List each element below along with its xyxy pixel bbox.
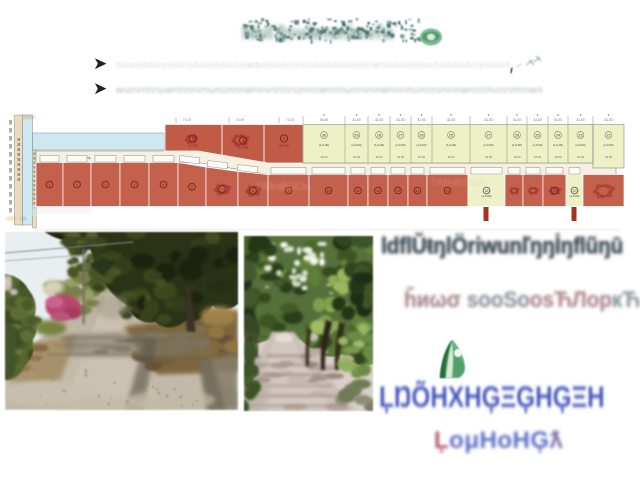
svg-text:26: 26 bbox=[420, 133, 424, 137]
svg-text:16.00: 16.00 bbox=[485, 155, 492, 159]
svg-text:26: 26 bbox=[515, 133, 519, 137]
svg-text:16.00: 16.00 bbox=[353, 155, 360, 159]
svg-text:29: 29 bbox=[355, 133, 359, 137]
svg-text:31.00: 31.00 bbox=[485, 118, 493, 122]
svg-text:(1-0-00): (1-0-00) bbox=[512, 143, 522, 147]
svg-text:22: 22 bbox=[607, 133, 611, 137]
svg-text:10: 10 bbox=[327, 189, 331, 193]
svg-text:27: 27 bbox=[399, 133, 403, 137]
svg-text:31.00: 31.00 bbox=[577, 118, 585, 122]
svg-text:TAfinBOOn: TAfinBOOn bbox=[430, 177, 485, 189]
svg-text:24: 24 bbox=[556, 133, 560, 137]
svg-text:wnw: wnw bbox=[22, 115, 36, 121]
svg-text:(1-0-00): (1-0-00) bbox=[417, 143, 427, 147]
svg-text:31.00: 31.00 bbox=[447, 118, 455, 122]
svg-text:(1-0-00): (1-0-00) bbox=[352, 143, 362, 147]
svg-text:31.00: 31.00 bbox=[320, 118, 328, 122]
svg-text:4: 4 bbox=[134, 183, 136, 187]
svg-text:16.00: 16.00 bbox=[534, 155, 541, 159]
svg-text:13: 13 bbox=[396, 189, 400, 193]
svg-text:11: 11 bbox=[356, 189, 360, 193]
svg-text:(1-0-00): (1-0-00) bbox=[570, 194, 580, 198]
svg-text:16.00: 16.00 bbox=[448, 155, 455, 159]
svg-text:3: 3 bbox=[105, 183, 107, 187]
svg-text:(1-0-00): (1-0-00) bbox=[396, 143, 406, 147]
svg-text:1: 1 bbox=[49, 183, 51, 187]
svg-text:(1-0-00): (1-0-00) bbox=[533, 143, 543, 147]
svg-text:16.00: 16.00 bbox=[605, 155, 612, 159]
svg-text:20: 20 bbox=[573, 189, 577, 193]
svg-text:(1-0-00): (1-0-00) bbox=[319, 143, 329, 147]
svg-text:31.00: 31.00 bbox=[554, 118, 562, 122]
svg-text:(1-0-00): (1-0-00) bbox=[604, 143, 614, 147]
svg-text:5: 5 bbox=[163, 183, 165, 187]
svg-text:73.00: 73.00 bbox=[183, 118, 192, 122]
svg-text:(1-0-00): (1-0-00) bbox=[279, 144, 289, 148]
svg-text:31.00: 31.00 bbox=[534, 118, 542, 122]
svg-text:31.00: 31.00 bbox=[397, 118, 405, 122]
svg-text:23: 23 bbox=[579, 133, 583, 137]
svg-text:(1-0-00): (1-0-00) bbox=[576, 143, 586, 147]
svg-text:28: 28 bbox=[377, 133, 381, 137]
svg-text:30: 30 bbox=[322, 133, 326, 137]
svg-text:(1-0-00): (1-0-00) bbox=[484, 143, 494, 147]
svg-text:31.00: 31.00 bbox=[353, 118, 361, 122]
svg-text:2: 2 bbox=[76, 183, 78, 187]
svg-text:16.00: 16.00 bbox=[514, 155, 521, 159]
svg-text:25: 25 bbox=[536, 133, 540, 137]
svg-text:16.00: 16.00 bbox=[376, 155, 383, 159]
svg-text:73.00: 73.00 bbox=[236, 118, 245, 122]
svg-text:16.00: 16.00 bbox=[397, 155, 404, 159]
svg-text:8: 8 bbox=[252, 189, 254, 193]
svg-text:31.00: 31.00 bbox=[375, 118, 383, 122]
svg-text:(1-0-00): (1-0-00) bbox=[374, 143, 384, 147]
svg-text:12: 12 bbox=[376, 189, 380, 193]
svg-text:16.00: 16.00 bbox=[418, 155, 425, 159]
svg-text:15: 15 bbox=[446, 189, 450, 193]
svg-text:(1-0-00): (1-0-00) bbox=[553, 143, 563, 147]
svg-text:7: 7 bbox=[221, 187, 223, 191]
svg-text:TAfinBOOn: TAfinBOOn bbox=[255, 181, 310, 193]
svg-text:16.00: 16.00 bbox=[555, 155, 562, 159]
svg-text:nw: nw bbox=[20, 216, 27, 222]
svg-text:3: 3 bbox=[283, 137, 285, 141]
svg-text:31.00: 31.00 bbox=[513, 118, 521, 122]
svg-text:(1-0-00): (1-0-00) bbox=[188, 144, 198, 148]
svg-text:uww: uww bbox=[6, 216, 16, 222]
svg-text:16.00: 16.00 bbox=[577, 155, 584, 159]
svg-text:25: 25 bbox=[449, 133, 453, 137]
svg-text:(1-0-00): (1-0-00) bbox=[482, 194, 492, 198]
svg-text:73.00: 73.00 bbox=[286, 118, 295, 122]
svg-text:(1-0-00): (1-0-00) bbox=[238, 146, 248, 150]
svg-text:16: 16 bbox=[485, 189, 489, 193]
svg-text:16.00: 16.00 bbox=[321, 155, 328, 159]
svg-text:14: 14 bbox=[416, 189, 420, 193]
svg-text:19: 19 bbox=[553, 189, 557, 193]
svg-text:27: 27 bbox=[487, 133, 491, 137]
svg-text:(1-0-00): (1-0-00) bbox=[446, 143, 456, 147]
svg-text:31.00: 31.00 bbox=[418, 118, 426, 122]
svg-text:31.00: 31.00 bbox=[605, 118, 613, 122]
svg-text:6: 6 bbox=[191, 185, 193, 189]
